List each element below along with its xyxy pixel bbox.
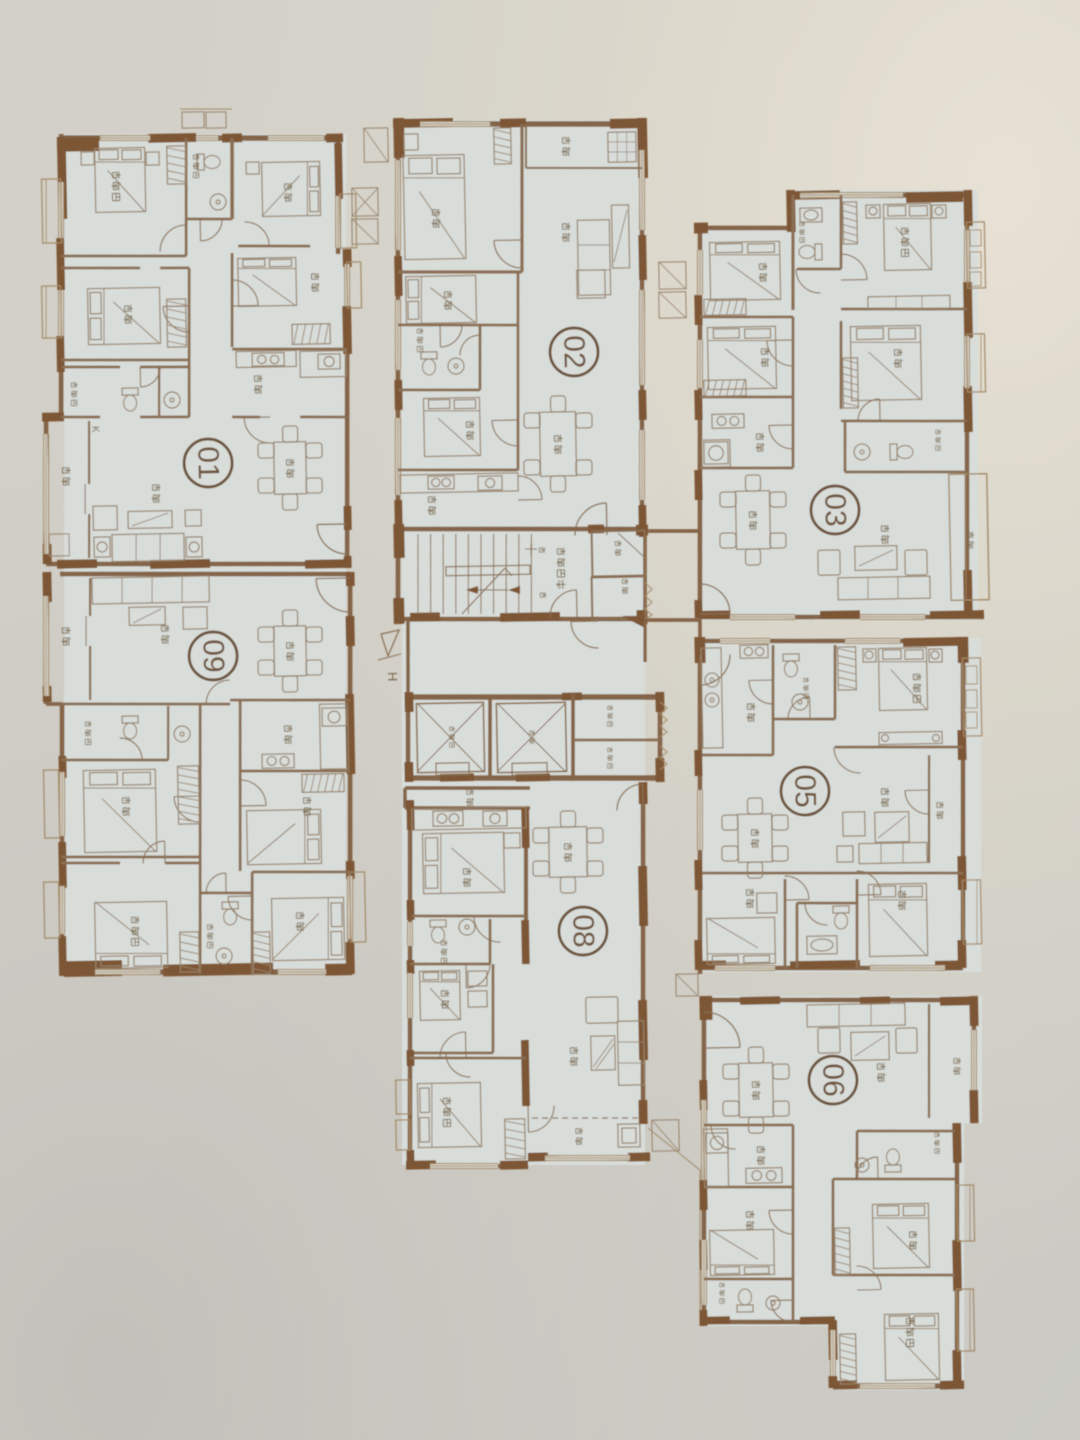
svg-text:06: 06 [816, 1063, 850, 1097]
svg-text:K: K [89, 426, 100, 433]
svg-text:02: 02 [557, 335, 591, 369]
svg-text:05: 05 [788, 774, 822, 808]
svg-text:03: 03 [818, 493, 852, 527]
svg-text:09: 09 [196, 639, 230, 673]
svg-text:H: H [385, 672, 400, 682]
svg-text:01: 01 [191, 446, 225, 480]
svg-text:08: 08 [566, 914, 600, 948]
